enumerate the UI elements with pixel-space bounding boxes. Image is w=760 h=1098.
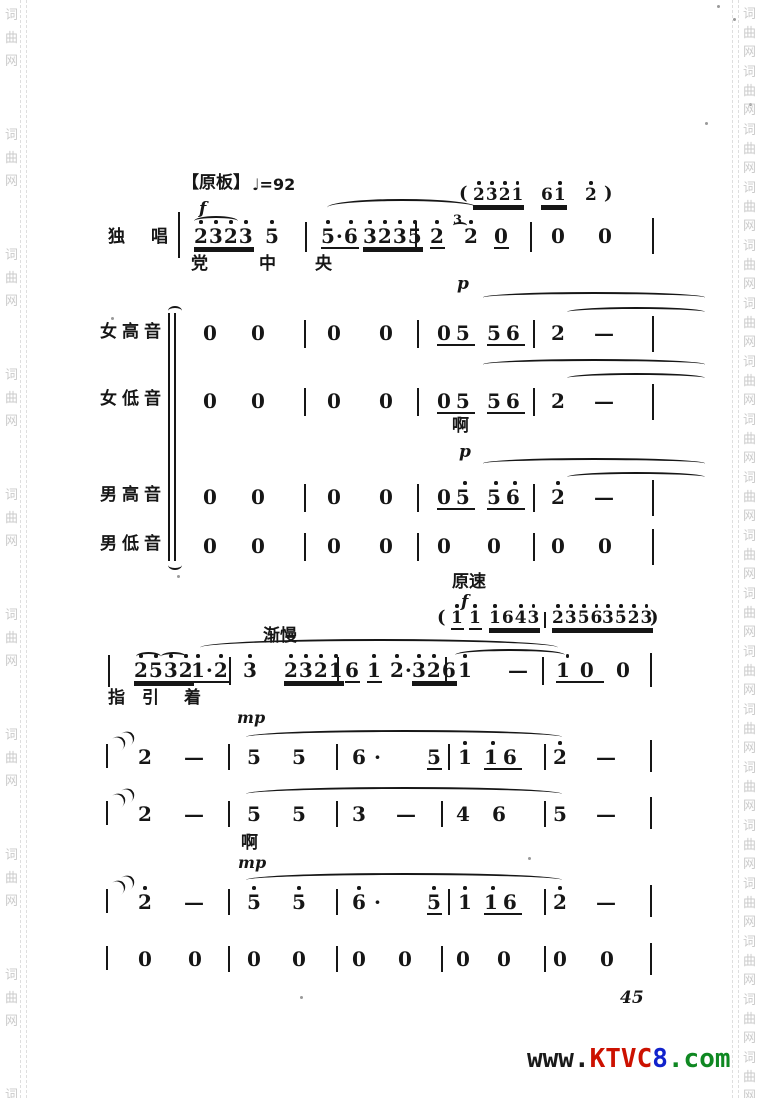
sop1: 0 xyxy=(327,323,342,343)
ten1: — xyxy=(594,487,615,507)
watermark-char: 曲 xyxy=(743,312,756,331)
barline xyxy=(544,946,546,972)
watermark-char: 词 xyxy=(743,61,756,80)
voice-label-bass: 男低音 xyxy=(100,536,166,553)
intro-cue-group2: 61 xyxy=(541,187,567,207)
watermark-char: 曲 xyxy=(5,147,18,166)
barline xyxy=(533,320,535,348)
solo2: 326 xyxy=(412,660,457,683)
barline xyxy=(178,212,180,258)
alto1: 0 xyxy=(251,391,266,411)
watermark-char: 曲 xyxy=(743,138,756,157)
octave-dot xyxy=(645,604,649,608)
cue2: 1 xyxy=(451,610,464,630)
watermark-char: 网 xyxy=(743,737,756,756)
alto2: 5 xyxy=(553,804,568,824)
watermark-char: 网 xyxy=(743,157,756,176)
sop2: 1 xyxy=(458,747,473,767)
watermark-char: 网 xyxy=(743,389,756,408)
barline xyxy=(417,320,419,348)
sop2: · xyxy=(374,747,382,767)
bass1: 0 xyxy=(487,536,502,556)
octave-dot xyxy=(566,654,570,658)
watermark-char: 曲 xyxy=(743,428,756,447)
barline xyxy=(106,889,108,913)
voice-label-soprano: 女高音 xyxy=(100,324,166,341)
slur-arc xyxy=(168,560,182,570)
octave-dot xyxy=(469,220,473,224)
dynamic-p-tenor: p xyxy=(459,444,471,461)
sop1: 56 xyxy=(487,323,525,346)
barline xyxy=(652,316,654,352)
octave-dot xyxy=(270,220,274,224)
watermark-char: 网 xyxy=(743,853,756,872)
watermark-char: 词 xyxy=(5,244,18,263)
watermark-char: 网 xyxy=(743,505,756,524)
bass2: 0 xyxy=(292,949,307,969)
watermark-char: 词 xyxy=(743,177,756,196)
watermark-char: 词 xyxy=(743,293,756,312)
solo1-m1a: 2323 xyxy=(194,226,254,249)
ten1: 56 xyxy=(487,487,525,510)
slur-arc xyxy=(136,652,161,661)
ten1: 0 xyxy=(203,487,218,507)
barline xyxy=(168,313,170,561)
watermark-char: 曲 xyxy=(5,267,18,286)
barline xyxy=(533,533,535,561)
barline xyxy=(542,657,544,685)
cue2: 1643 xyxy=(489,610,540,630)
slur-arc xyxy=(453,222,467,229)
watermark-char: 曲 xyxy=(743,950,756,969)
octave-dot xyxy=(516,181,520,185)
barline xyxy=(228,744,230,770)
watermark-char: 网 xyxy=(743,1027,756,1046)
watermark-char: 网 xyxy=(743,331,756,350)
octave-dot xyxy=(503,181,507,185)
alto2: 2 xyxy=(138,804,153,824)
octave-dot xyxy=(532,604,536,608)
solo1-m4b: 0 xyxy=(598,226,613,246)
barline xyxy=(445,657,447,685)
bass2: 0 xyxy=(497,949,512,969)
watermark-char: 曲 xyxy=(743,486,756,505)
solo2: 1 xyxy=(367,660,382,683)
octave-dot xyxy=(455,604,459,608)
solo2: 2· xyxy=(390,660,413,680)
barline xyxy=(652,384,654,420)
barline xyxy=(652,480,654,516)
watermark-char: 词 xyxy=(743,467,756,486)
octave-dot xyxy=(244,220,248,224)
octave-dot xyxy=(569,604,573,608)
barline xyxy=(106,801,108,825)
octave-dot xyxy=(558,181,562,185)
sop1: 2 xyxy=(551,323,566,343)
barline xyxy=(106,744,108,768)
barline xyxy=(448,889,450,915)
octave-dot xyxy=(519,604,523,608)
voice-label-solo: 独唱 xyxy=(108,229,194,246)
dynamic-f-solo: f xyxy=(199,201,206,218)
octave-dot xyxy=(556,481,560,485)
ten2: 6 xyxy=(352,892,367,912)
site-watermark-segment: 8 xyxy=(652,1044,668,1074)
watermark-char: 词 xyxy=(743,1047,756,1066)
slur-arc xyxy=(567,307,705,317)
watermark-char: 词 xyxy=(5,844,18,863)
watermark-char: 网 xyxy=(743,563,756,582)
watermark-char: 网 xyxy=(5,170,18,189)
barline xyxy=(106,946,108,970)
watermark-char: 曲 xyxy=(743,892,756,911)
barline xyxy=(336,889,338,915)
octave-dot xyxy=(473,604,477,608)
watermark-char: 词 xyxy=(5,484,18,503)
ten2: 16 xyxy=(484,892,522,915)
barline xyxy=(336,946,338,972)
watermark-char: 词 xyxy=(743,641,756,660)
solo1-m3c: 0 xyxy=(494,226,509,249)
barline xyxy=(530,222,532,252)
octave-dot xyxy=(349,220,353,224)
watermark-char: 词 xyxy=(5,724,18,743)
ten2: 5 xyxy=(292,892,307,912)
solo2: 0 xyxy=(616,660,631,680)
sop2: 2 xyxy=(553,747,568,767)
site-watermark-segment: .com xyxy=(668,1044,731,1074)
alto2: — xyxy=(596,804,617,824)
site-watermark-segment: www. xyxy=(527,1044,590,1074)
lyric-solo: 党 xyxy=(191,256,208,273)
octave-dot xyxy=(595,604,599,608)
bass1: 0 xyxy=(379,536,394,556)
alto1: 0 xyxy=(327,391,342,411)
barline xyxy=(652,218,654,254)
solo1-m4a: 0 xyxy=(551,226,566,246)
tempo-change: 原速 xyxy=(452,574,486,591)
cue2: ( xyxy=(437,609,447,627)
watermark-char: 词 xyxy=(743,873,756,892)
solo2: 1 xyxy=(458,660,473,680)
sop2: 6 xyxy=(352,747,367,767)
barline xyxy=(650,943,652,975)
cue2: ) xyxy=(650,609,660,627)
barline xyxy=(304,484,306,512)
barline xyxy=(544,801,546,827)
sop1: 0 xyxy=(251,323,266,343)
voice-label-alto: 女低音 xyxy=(100,391,166,408)
ten2: 2 xyxy=(553,892,568,912)
slur-arc xyxy=(483,359,705,370)
octave-dot xyxy=(494,481,498,485)
intro-cue-group1: 2321 xyxy=(473,187,524,207)
solo2: 2532 xyxy=(134,660,194,683)
octave-dot xyxy=(606,604,610,608)
watermark-char: 词 xyxy=(743,989,756,1008)
watermark-char: 网 xyxy=(5,890,18,909)
watermark-char: 词 xyxy=(5,604,18,623)
barline xyxy=(441,801,443,827)
watermark-char: 网 xyxy=(5,410,18,429)
bass1: 0 xyxy=(203,536,218,556)
ten1: 0 xyxy=(379,487,394,507)
octave-dot xyxy=(493,604,497,608)
solo1-m3a: 2 xyxy=(430,226,445,249)
lyric-alto: 啊 xyxy=(452,418,469,435)
slur-arc xyxy=(246,873,562,887)
barline xyxy=(533,484,535,512)
octave-dot xyxy=(477,181,481,185)
scan-speck xyxy=(177,575,180,578)
barline xyxy=(441,946,443,972)
solo1-m3b: 2 xyxy=(464,226,479,246)
watermark-char: 曲 xyxy=(743,660,756,679)
cue2: 3523 xyxy=(602,610,653,630)
watermark-char: 曲 xyxy=(743,254,756,273)
watermark-char: 词 xyxy=(5,364,18,383)
watermark-char: 曲 xyxy=(743,1008,756,1027)
watermark-dash-line xyxy=(20,0,21,1098)
watermark-char: 网 xyxy=(5,770,18,789)
sop1: 05 xyxy=(437,323,475,346)
octave-dot xyxy=(143,886,147,890)
sop2: — xyxy=(184,747,205,767)
watermark-char: 曲 xyxy=(743,196,756,215)
scan-speck xyxy=(705,122,708,125)
slur-arc xyxy=(246,730,562,744)
ten2: · xyxy=(374,892,382,912)
octave-dot xyxy=(513,481,517,485)
watermark-char: 词 xyxy=(743,931,756,950)
watermark-char: 网 xyxy=(743,41,756,60)
watermark-char: 网 xyxy=(5,1010,18,1029)
barline xyxy=(652,529,654,565)
barline xyxy=(229,657,231,685)
barline xyxy=(650,797,652,829)
scan-speck xyxy=(111,317,114,320)
watermark-char: 曲 xyxy=(743,370,756,389)
solo1-m2a: 5·6 xyxy=(321,226,359,249)
watermark-char: 词 xyxy=(743,525,756,544)
sop2: 2 xyxy=(138,747,153,767)
watermark-char: 曲 xyxy=(743,544,756,563)
barline xyxy=(417,388,419,416)
barline xyxy=(337,657,339,685)
watermark-char: 网 xyxy=(743,447,756,466)
solo2: 10 xyxy=(556,660,604,683)
barline xyxy=(415,222,417,252)
voice-label-tenor: 男高音 xyxy=(100,487,166,504)
ten1: 0 xyxy=(251,487,266,507)
slur-arc xyxy=(483,292,705,303)
ten2: — xyxy=(184,892,205,912)
barline xyxy=(650,653,652,687)
sheet-music-page: 45 www.KTVC8.com 【原板】♩=92(2321612)独唱f232… xyxy=(0,0,760,1098)
dynamic-mp-soprano: mp xyxy=(237,710,265,726)
watermark-char: 词 xyxy=(743,235,756,254)
watermark-char: 词 xyxy=(743,3,756,22)
watermark-char: 网 xyxy=(743,969,756,988)
watermark-char: 网 xyxy=(743,215,756,234)
watermark-char: 网 xyxy=(743,273,756,292)
ten2: — xyxy=(596,892,617,912)
watermark-char: 词 xyxy=(743,409,756,428)
barline xyxy=(304,320,306,348)
watermark-char: 词 xyxy=(743,583,756,602)
bass2: 0 xyxy=(188,949,203,969)
ten1: 0 xyxy=(327,487,342,507)
page-number: 45 xyxy=(620,988,644,1008)
solo2: — xyxy=(508,660,529,680)
sop2: 5 xyxy=(292,747,307,767)
lyric-solo2: 引 xyxy=(142,690,159,707)
slur-arc xyxy=(567,472,705,482)
watermark-char: 词 xyxy=(743,351,756,370)
intro-cue-close: ) xyxy=(604,185,614,203)
tempo-mark: 【原板】 xyxy=(182,175,250,192)
watermark-char: 网 xyxy=(743,99,756,118)
alto1: 56 xyxy=(487,391,525,414)
bass1: 0 xyxy=(327,536,342,556)
ten1: 05 xyxy=(437,487,475,510)
solo1-m1b: 5 xyxy=(265,226,280,246)
dynamic-mp-tenor: mp xyxy=(238,855,266,871)
watermark-char: 曲 xyxy=(743,602,756,621)
watermark-char: 网 xyxy=(743,679,756,698)
watermark-char: 曲 xyxy=(5,507,18,526)
lyric-tenor: 啊 xyxy=(241,835,258,852)
watermark-char: 网 xyxy=(5,50,18,69)
octave-dot xyxy=(383,220,387,224)
watermark-char: 曲 xyxy=(743,1066,756,1085)
alto1: 0 xyxy=(203,391,218,411)
watermark-char: 词 xyxy=(743,757,756,776)
dynamic-p-soprano: p xyxy=(457,276,469,293)
barline xyxy=(108,655,110,687)
slur-arc xyxy=(455,649,565,661)
lyric-solo: 央 xyxy=(315,256,332,273)
slur-arc xyxy=(161,652,186,661)
site-watermark-segment: KTVC xyxy=(590,1044,653,1074)
watermark-dash-line xyxy=(732,0,733,1098)
bass1: 0 xyxy=(251,536,266,556)
alto1: 05 xyxy=(437,391,475,414)
watermark-char: 曲 xyxy=(5,747,18,766)
barline xyxy=(174,313,176,561)
octave-dot xyxy=(490,181,494,185)
barline xyxy=(650,740,652,772)
solo2: 2321 xyxy=(284,660,344,683)
sop2: 5 xyxy=(247,747,262,767)
watermark-char: 曲 xyxy=(743,718,756,737)
barline xyxy=(336,801,338,827)
sop2: 5 xyxy=(427,747,442,770)
octave-dot xyxy=(619,604,623,608)
barline xyxy=(533,388,535,416)
bass2: 0 xyxy=(553,949,568,969)
watermark-char: 词 xyxy=(743,815,756,834)
cue2: 2356 xyxy=(552,610,603,630)
barline xyxy=(228,801,230,827)
watermark-char: 曲 xyxy=(743,834,756,853)
watermark-dash-line xyxy=(26,0,27,1098)
ten1: 2 xyxy=(551,487,566,507)
watermark-char: 网 xyxy=(5,530,18,549)
intro-cue-open: ( xyxy=(459,185,469,203)
watermark-char: 网 xyxy=(743,1085,756,1098)
watermark-char: 词 xyxy=(5,124,18,143)
watermark-char: 曲 xyxy=(5,987,18,1006)
bass2: 0 xyxy=(398,949,413,969)
sop2: — xyxy=(596,747,617,767)
alto2: 5 xyxy=(292,804,307,824)
ten2: 5 xyxy=(427,892,442,915)
bass2: 0 xyxy=(352,949,367,969)
watermark-char: 曲 xyxy=(5,627,18,646)
octave-dot xyxy=(435,220,439,224)
ten2: 2 xyxy=(138,892,153,912)
octave-dot xyxy=(398,220,402,224)
ten2: 1 xyxy=(458,892,473,912)
octave-dot xyxy=(326,220,330,224)
barline xyxy=(544,744,546,770)
sop2: 16 xyxy=(484,747,522,770)
octave-dot xyxy=(368,220,372,224)
alto2: 4 xyxy=(456,804,471,824)
barline xyxy=(417,484,419,512)
octave-dot xyxy=(632,604,636,608)
lyric-solo2: 指 xyxy=(108,690,125,707)
watermark-char: 曲 xyxy=(743,22,756,41)
sop1: — xyxy=(594,323,615,343)
alto1: 0 xyxy=(379,391,394,411)
alto2: 6 xyxy=(492,804,507,824)
alto1: — xyxy=(594,391,615,411)
alto2: 5 xyxy=(247,804,262,824)
ten2: 5 xyxy=(247,892,262,912)
slur-arc xyxy=(567,373,705,383)
watermark-char: 网 xyxy=(743,795,756,814)
barline xyxy=(304,533,306,561)
alto2: — xyxy=(184,804,205,824)
slur-arc xyxy=(168,306,182,316)
intro-cue-group3: 2 xyxy=(585,187,598,204)
bass2: 0 xyxy=(600,949,615,969)
lyric-solo: 中 xyxy=(259,256,276,273)
octave-dot xyxy=(463,481,467,485)
scan-speck xyxy=(300,996,303,999)
bass2: 0 xyxy=(456,949,471,969)
solo2: 6 xyxy=(345,660,360,683)
octave-dot xyxy=(556,604,560,608)
watermark-dash-line xyxy=(738,0,739,1098)
bass1: 0 xyxy=(551,536,566,556)
site-watermark: www.KTVC8.com xyxy=(527,1044,731,1074)
watermark-char: 词 xyxy=(5,4,18,23)
watermark-char: 网 xyxy=(5,290,18,309)
octave-dot xyxy=(589,181,593,185)
barline xyxy=(544,889,546,915)
barline xyxy=(305,222,307,252)
bass2: 0 xyxy=(138,949,153,969)
watermark-char: 曲 xyxy=(5,387,18,406)
solo2: 3 xyxy=(243,660,258,680)
watermark-char: 词 xyxy=(743,119,756,138)
alto2: 3 xyxy=(352,804,367,824)
solo2: 1·2 xyxy=(191,660,229,683)
watermark-char: 网 xyxy=(5,650,18,669)
